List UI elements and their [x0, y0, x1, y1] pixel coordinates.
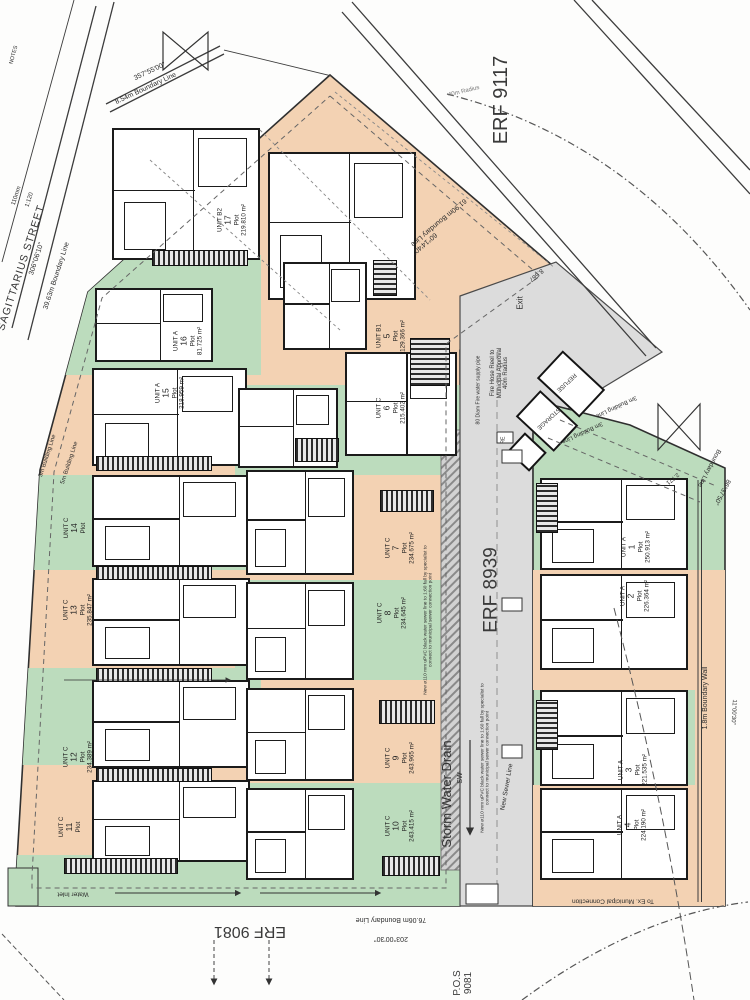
house-unit-12 [92, 680, 250, 768]
sewer-note-2: New ø110 mm uPVC black water sewer line … [481, 683, 492, 833]
house-unit-13 [92, 578, 250, 666]
stairs [295, 438, 339, 462]
storm-water-drain-label: Storm Water Drain [440, 740, 454, 847]
unit-label-12: UNIT C12Plot234.389 m² [63, 741, 94, 773]
stairs [536, 700, 558, 750]
stairs [152, 250, 248, 266]
stairs [382, 856, 440, 876]
corner-green-plot [8, 868, 38, 906]
re-label: RE [501, 437, 507, 444]
unit-label-15: UNIT A15Plot218.959 m² [155, 377, 186, 409]
unit-label-3: UNIT A3Plot221.535 m² [618, 754, 649, 786]
house-mid-small [283, 262, 367, 350]
unit-label-14: UNIT C14Plot [63, 518, 87, 539]
stairs [380, 490, 434, 512]
stairs [96, 768, 212, 782]
right-lower-bearing: 11°00'30" [729, 699, 737, 725]
unit-label-9: UNIT C9Plot243.965 m² [385, 742, 416, 774]
stairs [373, 260, 397, 296]
boundary-wall-label: 1.8m Boundary Wall [702, 667, 710, 730]
house-top-left [112, 128, 260, 260]
stairs [536, 483, 558, 533]
unit-label-8: UNIT C8Plot234.645 m² [377, 597, 408, 629]
house-unit-1 [540, 478, 688, 570]
fire-hose-note: Fire Hose Reel toMunicipal Approval40m R… [490, 348, 510, 398]
unit-label-5: UNIT B15Plot129.366 m² [376, 320, 407, 352]
house-unit-3 [540, 690, 688, 786]
unit-label-17: UNIT B217Plot219.810 m² [217, 204, 248, 236]
erf-9081-label: ERF 9081 [214, 922, 286, 940]
stairs [410, 338, 450, 386]
house-unit-8 [246, 582, 354, 680]
bottom-boundary: 76.06m Boundary Line [356, 915, 426, 923]
unit-label-10: UNIT C10Plot243.415 m² [385, 810, 416, 842]
house-unit-14 [92, 475, 250, 567]
unit-label-11: UNIT C11Plot [58, 817, 82, 838]
bottom-bearing: 203°00'30" [374, 934, 408, 942]
house-unit-2 [540, 574, 688, 670]
unit-label-16: UNIT A16Plot81.725 m² [173, 327, 204, 355]
exit-label: Exit [517, 296, 526, 309]
sewer-note-1: New ø110 mm uPVC black water sewer line … [424, 545, 435, 695]
house-unit-11 [92, 780, 250, 862]
unit-label-4: UNIT A4Plot224.190 m² [617, 809, 648, 841]
erf-9117-label: ERF 9117 [490, 56, 512, 145]
unit-label-7: UNIT C7Plot234.675 m² [385, 532, 416, 564]
site-plan: SAGITTARIUS STREET 306°06'10" 39.63m Bou… [0, 0, 750, 1000]
erf-8939-label: ERF 8939 [482, 547, 503, 633]
municipal-connection-label: To Ex. Municipal Connection [572, 897, 654, 904]
sw-label: SW [457, 772, 465, 783]
stairs [96, 668, 212, 682]
house-unit-9 [246, 688, 354, 781]
stairs [64, 858, 178, 874]
unit-label-1: UNIT A1Plot250.913 m² [621, 531, 652, 563]
house-unit-4 [540, 788, 688, 880]
unit-label-6: UNIT C6Plot215.402 m² [376, 392, 407, 424]
stairs [96, 566, 212, 580]
house-unit-7 [246, 470, 354, 575]
water-inlet-label: Water Inlet [57, 890, 88, 897]
house-unit-10 [246, 788, 354, 880]
stairs [96, 456, 212, 471]
unit-label-13: UNIT C13Plot235.847 m² [63, 594, 94, 626]
pos-label: P.O.S9081 [452, 970, 474, 995]
fire-pipe-note: 80 Diam Fire water supply pipe [476, 356, 482, 425]
stairs [379, 700, 435, 724]
unit-label-2: UNIT A2Plot226.364 m² [620, 580, 651, 612]
